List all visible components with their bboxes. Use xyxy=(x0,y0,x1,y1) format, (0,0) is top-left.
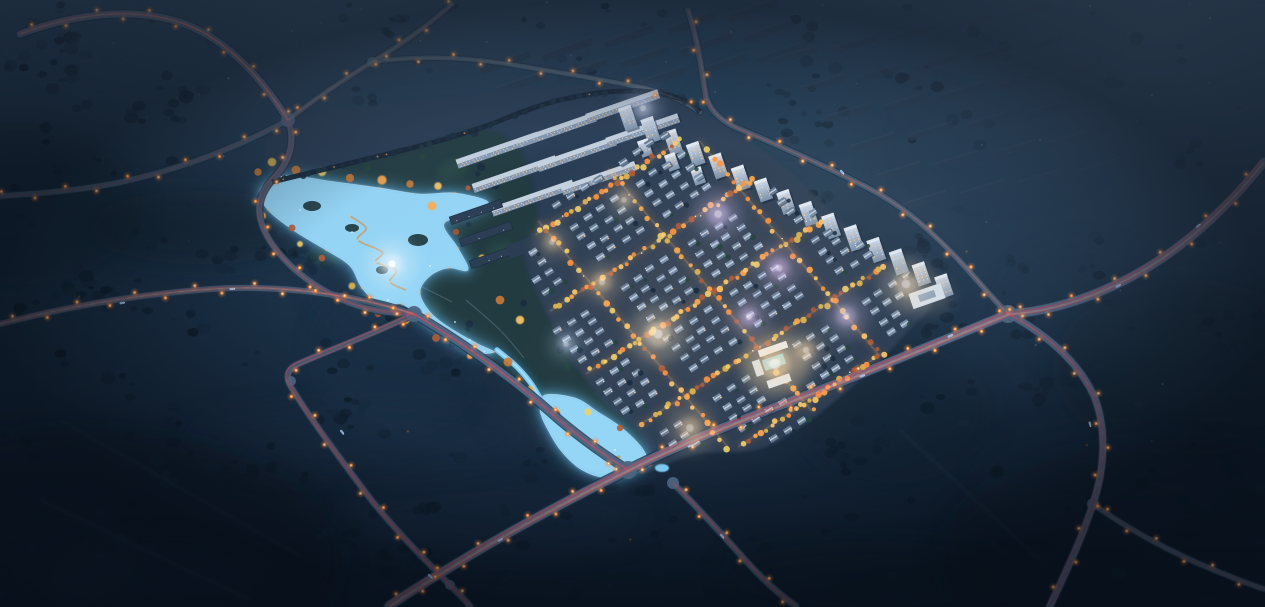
masterplan-rendering-canvas xyxy=(0,0,1265,607)
aerial-night-rendering xyxy=(0,0,1265,607)
atmosphere-layer xyxy=(0,0,1265,607)
